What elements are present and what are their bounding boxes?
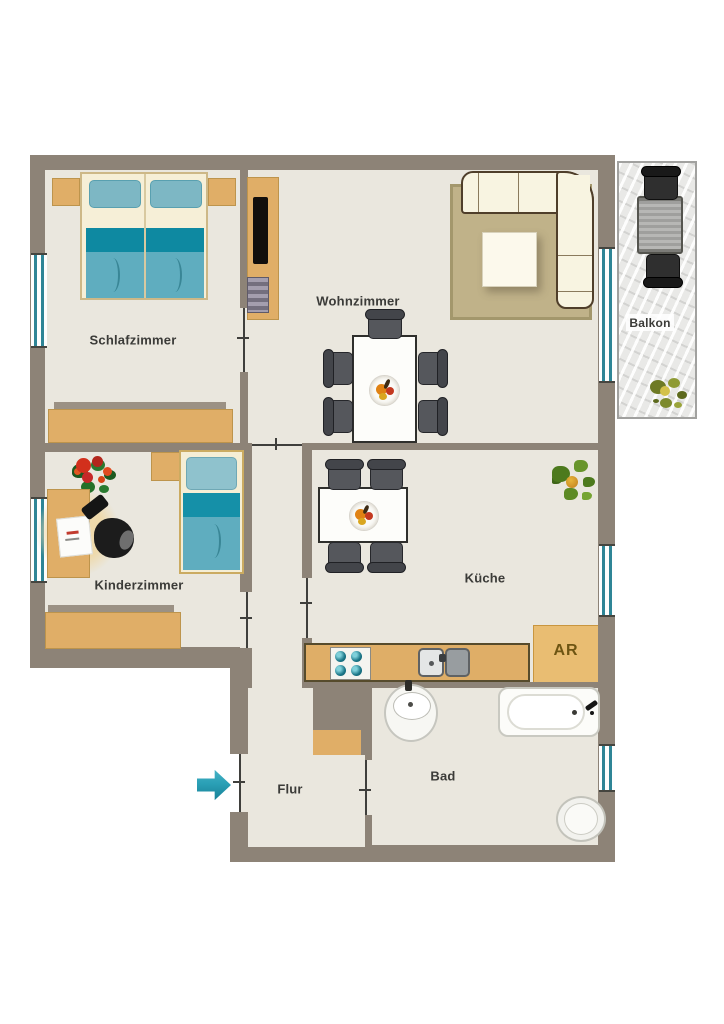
desk-chair (94, 518, 134, 558)
balcony-table (637, 196, 683, 254)
door-schlafzimmer-tick (237, 337, 249, 339)
balcony-chair-bottom (646, 254, 680, 282)
blanket-fold-right (168, 258, 182, 292)
kitchen-chair-bottom-1 (328, 542, 361, 567)
paper-mark-gray (65, 538, 79, 541)
sofa-corner-patch (560, 175, 590, 210)
kitchen-chair-bottom-2 (370, 542, 403, 567)
door-kinderzimmer (246, 592, 248, 648)
kitchen-chair-top-2 (370, 465, 403, 490)
sofa-seam-cushion (518, 173, 519, 212)
stove (330, 647, 371, 680)
kids-blanket-fold (207, 524, 221, 558)
room-label-kinderzimmer: Kinderzimmer (94, 578, 183, 593)
floorplan: Balkon Schlafzimmer (0, 0, 724, 1024)
coffee-table (482, 232, 537, 287)
dining-chair-left-1 (329, 352, 353, 385)
kids-bed (179, 450, 244, 574)
balcony-plant (642, 372, 690, 416)
flur-cabinet (313, 730, 361, 755)
fruit-red (386, 387, 394, 395)
double-bed (80, 172, 208, 300)
door-bad (365, 760, 367, 815)
sink-drain (408, 702, 413, 707)
plant-core (660, 386, 670, 396)
fruit-yellow (358, 518, 366, 525)
floor-flur-lower (313, 755, 365, 847)
sofa-seam-armrest (478, 173, 479, 212)
passage-tick (275, 438, 277, 450)
flower-petals (76, 458, 91, 473)
window-schlafzimmer (31, 253, 47, 348)
toilet (556, 796, 606, 842)
bathtub-faucet-knob (590, 711, 594, 715)
room-label-kueche: Küche (465, 571, 506, 586)
kitchen-sink-right-basin (445, 648, 470, 677)
door-kinderzimmer-tick (240, 617, 252, 619)
balcony-chair-top (644, 172, 678, 200)
dining-chair-right-2 (418, 400, 442, 433)
dining-chair-right-1 (418, 352, 442, 385)
pillow-left (89, 180, 141, 208)
sink-drain (429, 661, 434, 666)
sofa-seam-side-arm (558, 291, 592, 292)
kueche-plant (544, 456, 600, 512)
entrance-arrow-icon (197, 767, 231, 803)
door-kueche-tick (300, 602, 312, 604)
burner (351, 665, 362, 676)
passage-wohnzimmer-corridor (252, 444, 302, 446)
balcony-sliding-door (599, 247, 615, 383)
room-label-schlafzimmer: Schlafzimmer (90, 333, 177, 348)
kitchen-sink-left-basin (418, 648, 444, 677)
window-bad (599, 744, 615, 792)
plant-core (566, 476, 578, 488)
tv-drawer-unit (247, 277, 269, 313)
door-entrance-tick (233, 781, 245, 783)
paper-mark-red (66, 531, 78, 535)
bathtub-drain (572, 710, 577, 715)
fruit-yellow (379, 393, 387, 400)
wardrobe-kinderzimmer (45, 612, 181, 649)
nightstand-right (208, 178, 236, 206)
blanket-top-left (86, 228, 144, 252)
fruit-bowl-wohnzimmer (369, 375, 400, 406)
room-label-wohnzimmer: Wohnzimmer (316, 294, 399, 309)
room-label-balkon: Balkon (629, 316, 670, 330)
door-gap-entrance-inner (240, 754, 248, 812)
pillow-right (150, 180, 202, 208)
burner (335, 651, 346, 662)
desk-paper (56, 515, 93, 557)
room-label-flur: Flur (277, 782, 302, 797)
fruit-plate-kueche (349, 501, 379, 531)
floor-flur-left (248, 688, 313, 847)
toilet-seat (564, 803, 598, 835)
window-kueche (599, 544, 615, 617)
sofa-seam-side (558, 255, 592, 256)
room-label-ar: AR (553, 642, 578, 660)
bathtub (498, 687, 600, 737)
kids-shelf (151, 452, 181, 481)
dining-chair-top (368, 315, 402, 339)
dining-chair-left-2 (329, 400, 353, 433)
nightstand-left (52, 178, 80, 206)
kids-blanket-top (183, 493, 240, 517)
tv-screen (253, 197, 268, 264)
bathtub-faucet (585, 700, 599, 712)
door-bad-tick (359, 789, 371, 791)
burner (351, 651, 362, 662)
door-kueche (306, 578, 308, 638)
blanket-top-right (146, 228, 204, 252)
kitchen-faucet (439, 654, 446, 662)
door-entrance (239, 754, 241, 812)
room-label-bad: Bad (430, 769, 455, 784)
door-gap-bad (362, 760, 372, 815)
kitchen-chair-top-1 (328, 465, 361, 490)
wardrobe-schlafzimmer (48, 409, 233, 443)
kids-pillow (186, 457, 237, 490)
burner (335, 665, 346, 676)
blanket-fold-left (106, 258, 120, 292)
bathroom-sink (384, 684, 438, 742)
door-schlafzimmer (243, 308, 245, 372)
bathroom-sink-faucet (405, 680, 412, 691)
floor-corridor (252, 443, 302, 688)
